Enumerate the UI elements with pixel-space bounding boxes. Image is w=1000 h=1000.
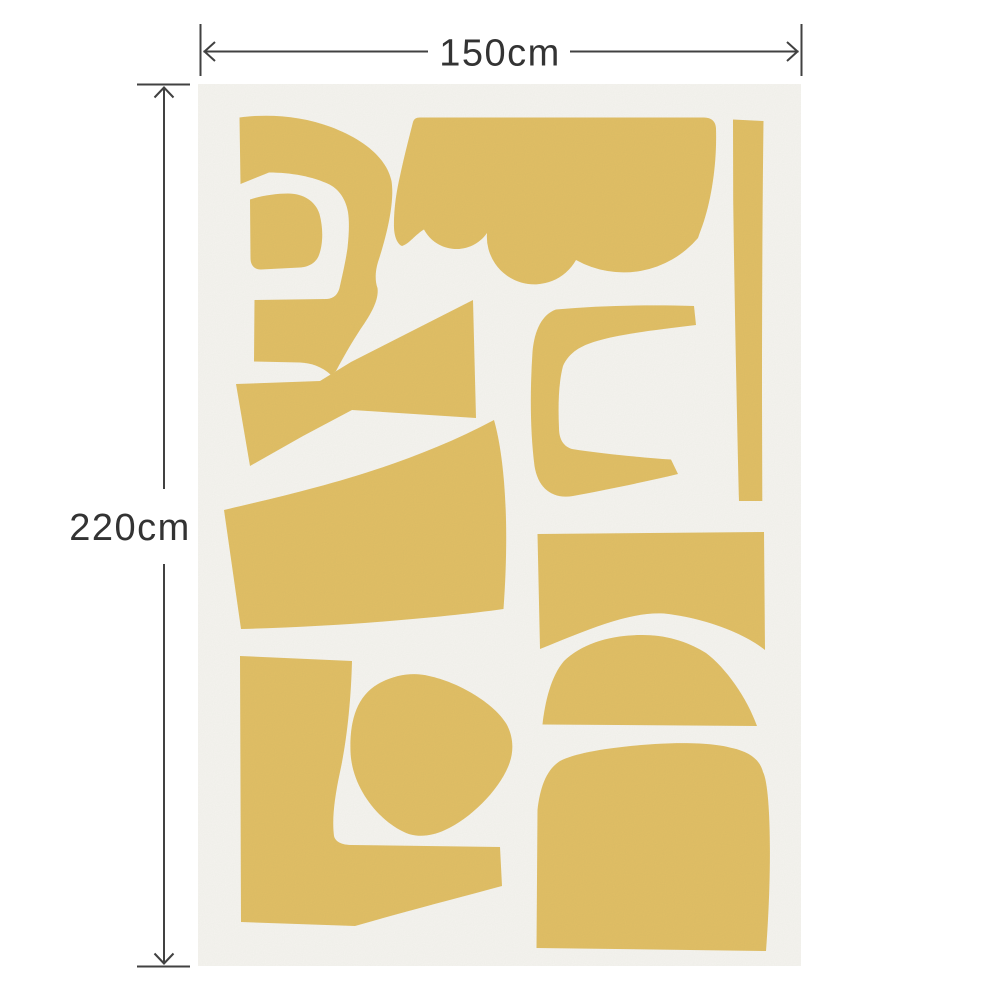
svg-text:220cm: 220cm (69, 507, 191, 549)
svg-text:150cm: 150cm (439, 33, 561, 75)
